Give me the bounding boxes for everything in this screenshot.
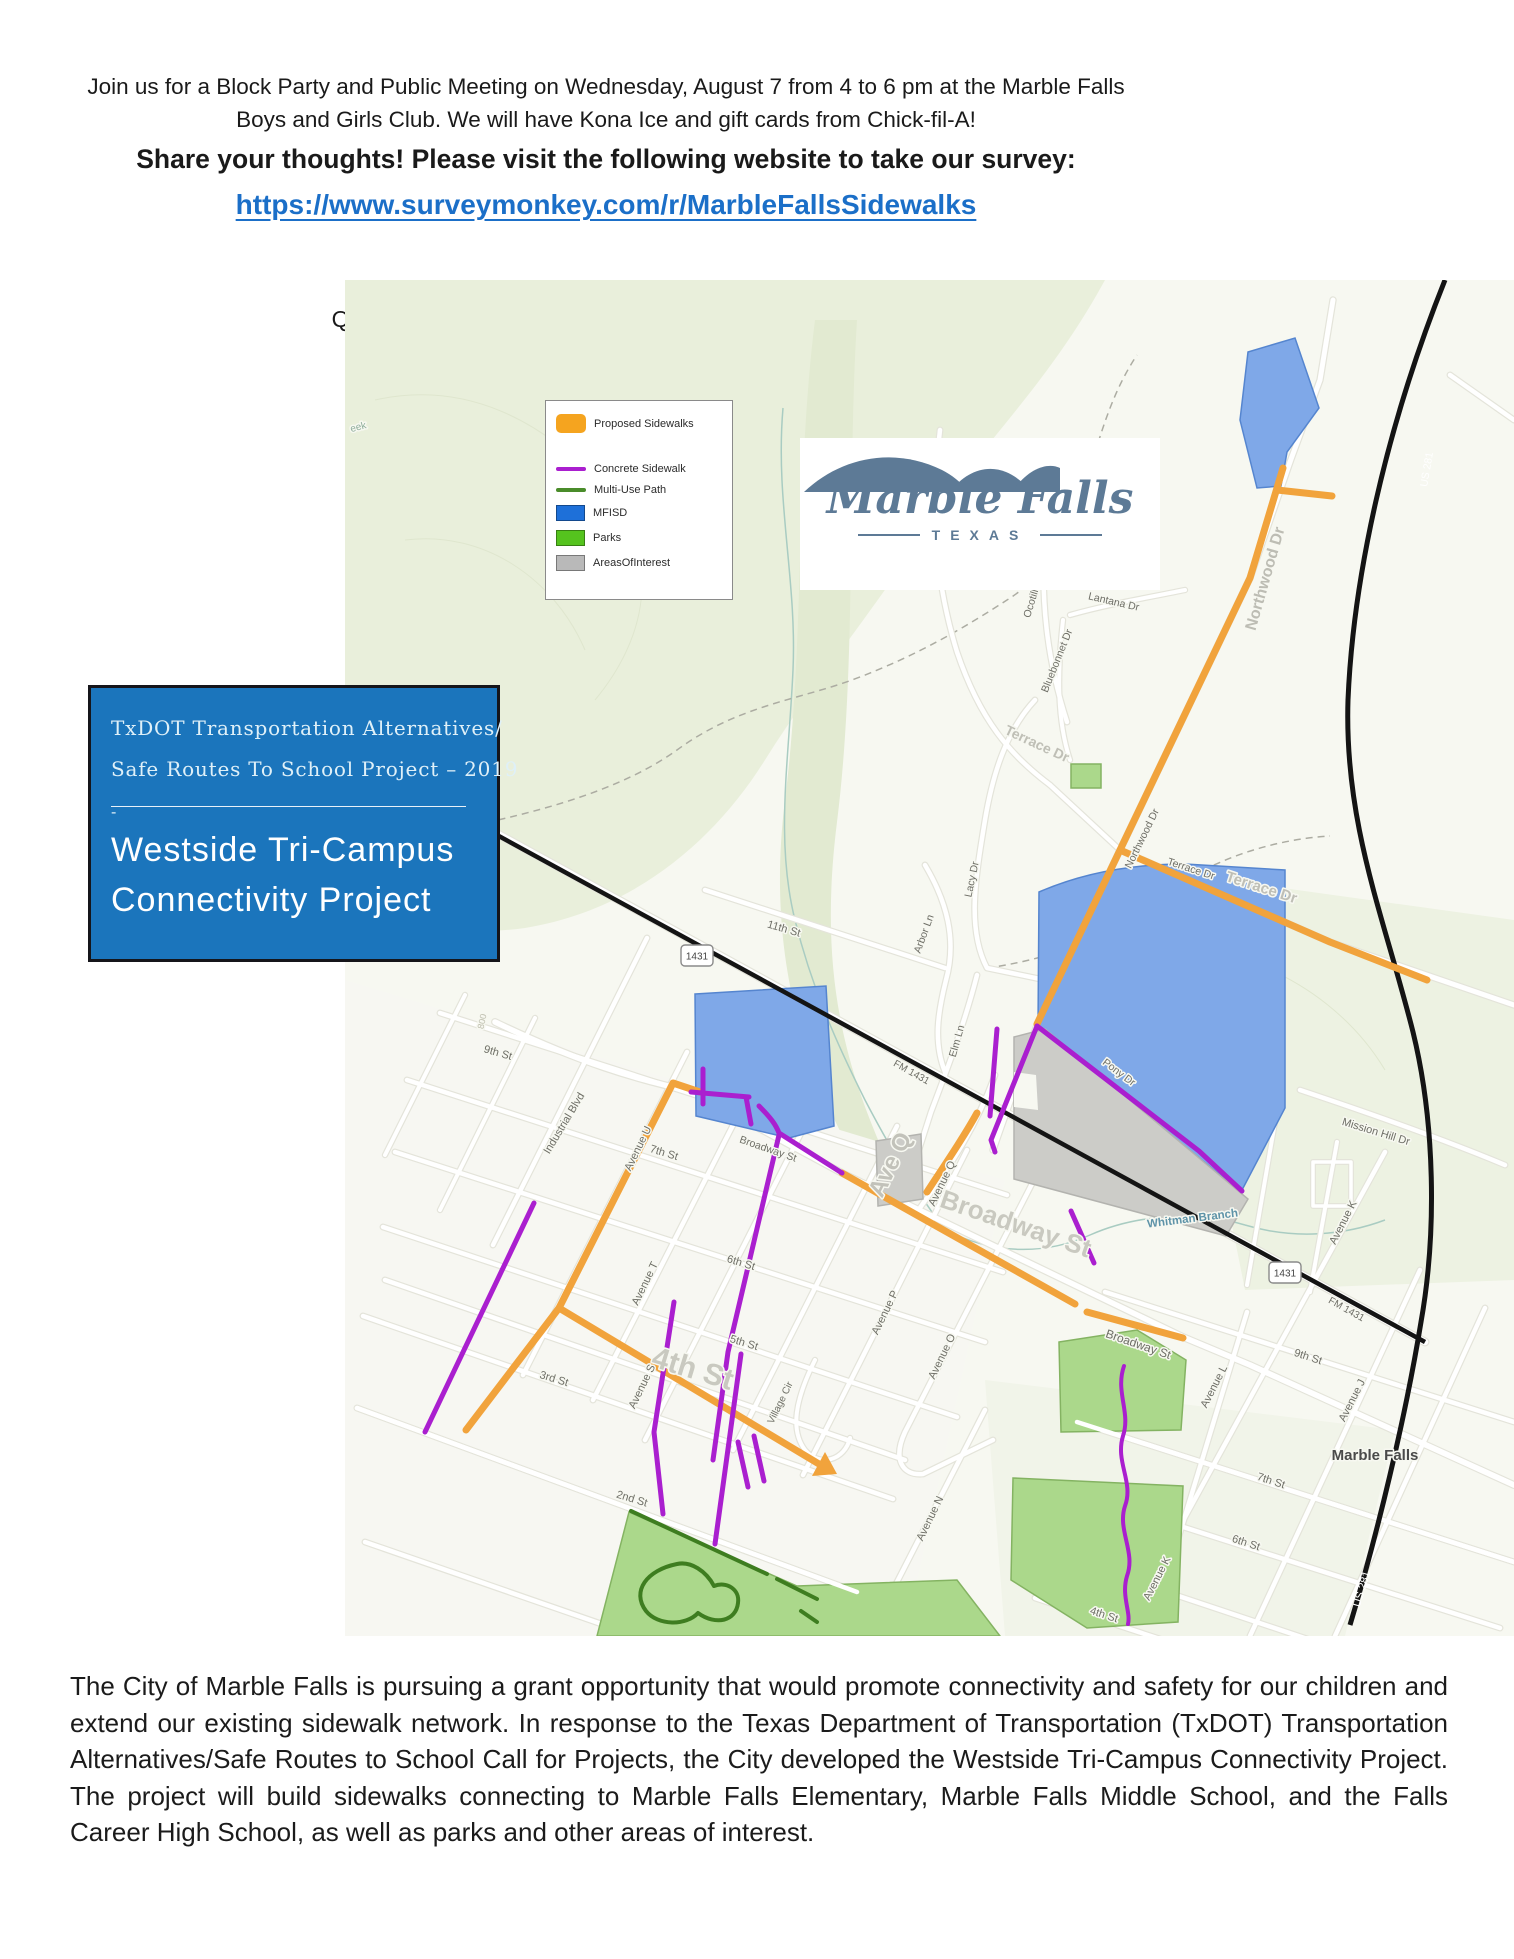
legend-label: MFISD xyxy=(593,507,627,519)
legend-label: AreasOfInterest xyxy=(593,557,670,569)
legend-label: Parks xyxy=(593,532,621,544)
intro-line-2: Boys and Girls Club. We will have Kona I… xyxy=(0,103,1212,136)
project-title-line-2: Connectivity Project xyxy=(111,875,479,925)
flyer-page: Join us for a Block Party and Public Mee… xyxy=(0,0,1514,1959)
legend-item: Concrete Sidewalk xyxy=(556,463,722,475)
marble-falls-logo: Marble Falls TEXAS xyxy=(800,438,1160,590)
legend-item: Multi-Use Path xyxy=(556,484,722,496)
project-program-line-1: TxDOT Transportation Alternatives/ xyxy=(111,708,479,749)
legend-label: Proposed Sidewalks xyxy=(594,418,694,430)
share-thoughts-line: Share your thoughts! Please visit the fo… xyxy=(0,144,1212,175)
legend-swatch-icon xyxy=(556,530,585,546)
legend-swatch-icon xyxy=(556,505,585,521)
header-block: Join us for a Block Party and Public Mee… xyxy=(0,70,1212,221)
map-legend: Proposed SidewalksConcrete SidewalkMulti… xyxy=(545,400,733,600)
legend-item: AreasOfInterest xyxy=(556,555,722,571)
legend-item: Parks xyxy=(556,530,722,546)
project-program-line-2: Safe Routes To School Project – 2019 xyxy=(111,749,479,790)
logo-rule-right xyxy=(1040,534,1102,536)
body-paragraph: The City of Marble Falls is pursuing a g… xyxy=(70,1668,1448,1851)
legend-swatch-icon xyxy=(556,555,585,571)
survey-link[interactable]: https://www.surveymonkey.com/r/MarbleFal… xyxy=(236,189,977,221)
intro-line-1: Join us for a Block Party and Public Mee… xyxy=(0,70,1212,103)
legend-item: MFISD xyxy=(556,505,722,521)
highway-shield-number: 1431 xyxy=(1274,1269,1297,1280)
legend-item: Proposed Sidewalks xyxy=(556,414,722,433)
highway-shield-number: 1431 xyxy=(686,952,709,963)
legend-label: Multi-Use Path xyxy=(594,484,666,496)
legend-swatch-icon xyxy=(556,414,586,433)
map-area-polygon xyxy=(1071,764,1101,788)
logo-subtitle-text: TEXAS xyxy=(932,527,1029,543)
street-label: Marble Falls xyxy=(1332,1447,1419,1464)
logo-subtitle: TEXAS xyxy=(858,527,1103,543)
legend-swatch-icon xyxy=(556,488,586,492)
project-map: 14311431 eek80011th St9th St7th St6th St… xyxy=(345,280,1514,1636)
legend-swatch-icon xyxy=(556,467,586,471)
hills-icon xyxy=(800,438,1064,494)
divider-dash: - xyxy=(111,807,479,819)
project-title-line-1: Westside Tri-Campus xyxy=(111,825,479,875)
legend-label: Concrete Sidewalk xyxy=(594,463,686,475)
logo-rule-left xyxy=(858,534,920,536)
project-title-box: TxDOT Transportation Alternatives/ Safe … xyxy=(88,685,500,962)
